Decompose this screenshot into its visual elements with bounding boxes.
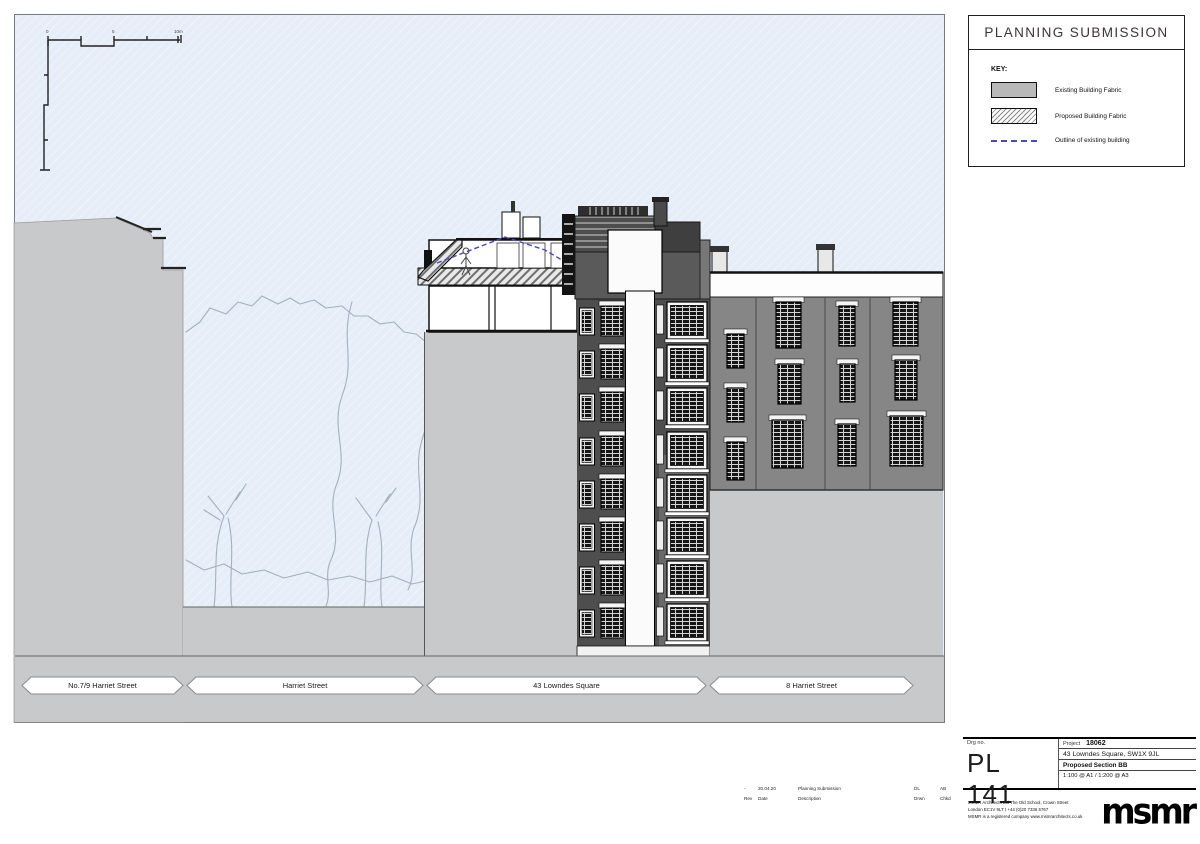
revision-header-date: Date (758, 796, 798, 801)
planning-submission-box: PLANNING SUBMISSION KEY: Existing Buildi… (968, 15, 1185, 167)
firm-line: MSMR Architects Ltd The Old School, Crow… (968, 800, 1088, 807)
key-item-existing: Existing Building Fabric (991, 82, 1184, 98)
cut-room-lower (429, 286, 577, 332)
outline-dash-swatch (991, 140, 1037, 142)
revision-table: - 20.04.20 Planning Submission DL AB Rev… (744, 786, 964, 801)
project-cell: Project 18062 43 Lowndes Square, SW1X 9J… (1059, 739, 1196, 788)
legend-title-row: PLANNING SUBMISSION (969, 16, 1184, 50)
proposed-fabric-swatch (991, 108, 1037, 124)
scale-end-label: 10m (174, 29, 183, 34)
key-item-outline: Outline of existing building (991, 137, 1184, 144)
chimney (818, 248, 833, 274)
legend-title: PLANNING SUBMISSION (984, 25, 1168, 40)
key-item-label: Outline of existing building (1055, 137, 1130, 144)
project-label: Project (1063, 741, 1080, 747)
msmr-logo: msmr (1086, 790, 1194, 832)
revision-header-description: Description (798, 796, 914, 801)
key-label: KEY: (991, 66, 1184, 73)
core-strip (626, 291, 655, 646)
revision-date: 20.04.20 (758, 786, 798, 791)
roof-dormer (523, 217, 540, 238)
revision-header-checked: Chkd (940, 796, 964, 801)
drawing-title: Proposed Section BB (1059, 760, 1196, 771)
revision-rev: - (744, 786, 758, 791)
revision-description: Planning Submission (798, 786, 914, 791)
project-number: 18062 (1086, 740, 1105, 747)
proposed-slab-hatch (418, 268, 580, 285)
revision-header-rev: Rev (744, 796, 758, 801)
roof-flue (511, 201, 515, 212)
firm-address: MSMR Architects Ltd The Old School, Crow… (968, 800, 1088, 820)
key-item-label: Proposed Building Fabric (1055, 113, 1126, 120)
tower-base (577, 646, 710, 656)
street-label: No.7/9 Harriet Street (68, 681, 138, 690)
sectioned-building (418, 201, 580, 658)
key-item-label: Existing Building Fabric (1055, 87, 1121, 94)
chimney (654, 200, 667, 226)
parapet (710, 272, 943, 297)
existing-fabric-swatch (991, 82, 1037, 98)
project-address: 43 Lowndes Square, SW1X 9JL (1059, 749, 1196, 760)
firm-line: MSMR is a registered company www.msmrarc… (968, 814, 1088, 821)
key-item-proposed: Proposed Building Fabric (991, 108, 1184, 124)
drawing-sheet: 0 5 10m (0, 0, 1200, 844)
street-label: 43 Lowndes Square (533, 681, 600, 690)
revision-drawn: DL (914, 786, 940, 791)
chimney (712, 250, 727, 274)
drg-no-label: Drg no. (967, 740, 1054, 746)
street-label: 8 Harriet Street (786, 681, 838, 690)
tower-elevation (562, 197, 710, 656)
left-building-mass (14, 217, 186, 722)
project-row: Project 18062 (1059, 739, 1196, 749)
revision-header-drawn: Drwn (914, 796, 940, 801)
revision-checked: AB (940, 786, 964, 791)
drawing-number-cell: Drg no. PL 141 (963, 739, 1059, 788)
street-label: Harriet Street (283, 681, 329, 690)
street-banners: No.7/9 Harriet Street Harriet Street 43 … (22, 677, 913, 694)
firm-line: London EC1V 9LT t +44 (0)20 7336 5767 (968, 807, 1088, 814)
right-building (710, 244, 943, 658)
title-block-top: Drg no. PL 141 Project 18062 43 Lowndes … (963, 737, 1196, 790)
roof-dormer (502, 212, 520, 238)
right-podium (710, 490, 943, 658)
roof-plant-box (608, 230, 662, 293)
title-block: Drg no. PL 141 Project 18062 43 Lowndes … (963, 737, 1196, 790)
drawing-scale: 1:100 @ A1 / 1:200 @ A3 (1059, 771, 1196, 781)
